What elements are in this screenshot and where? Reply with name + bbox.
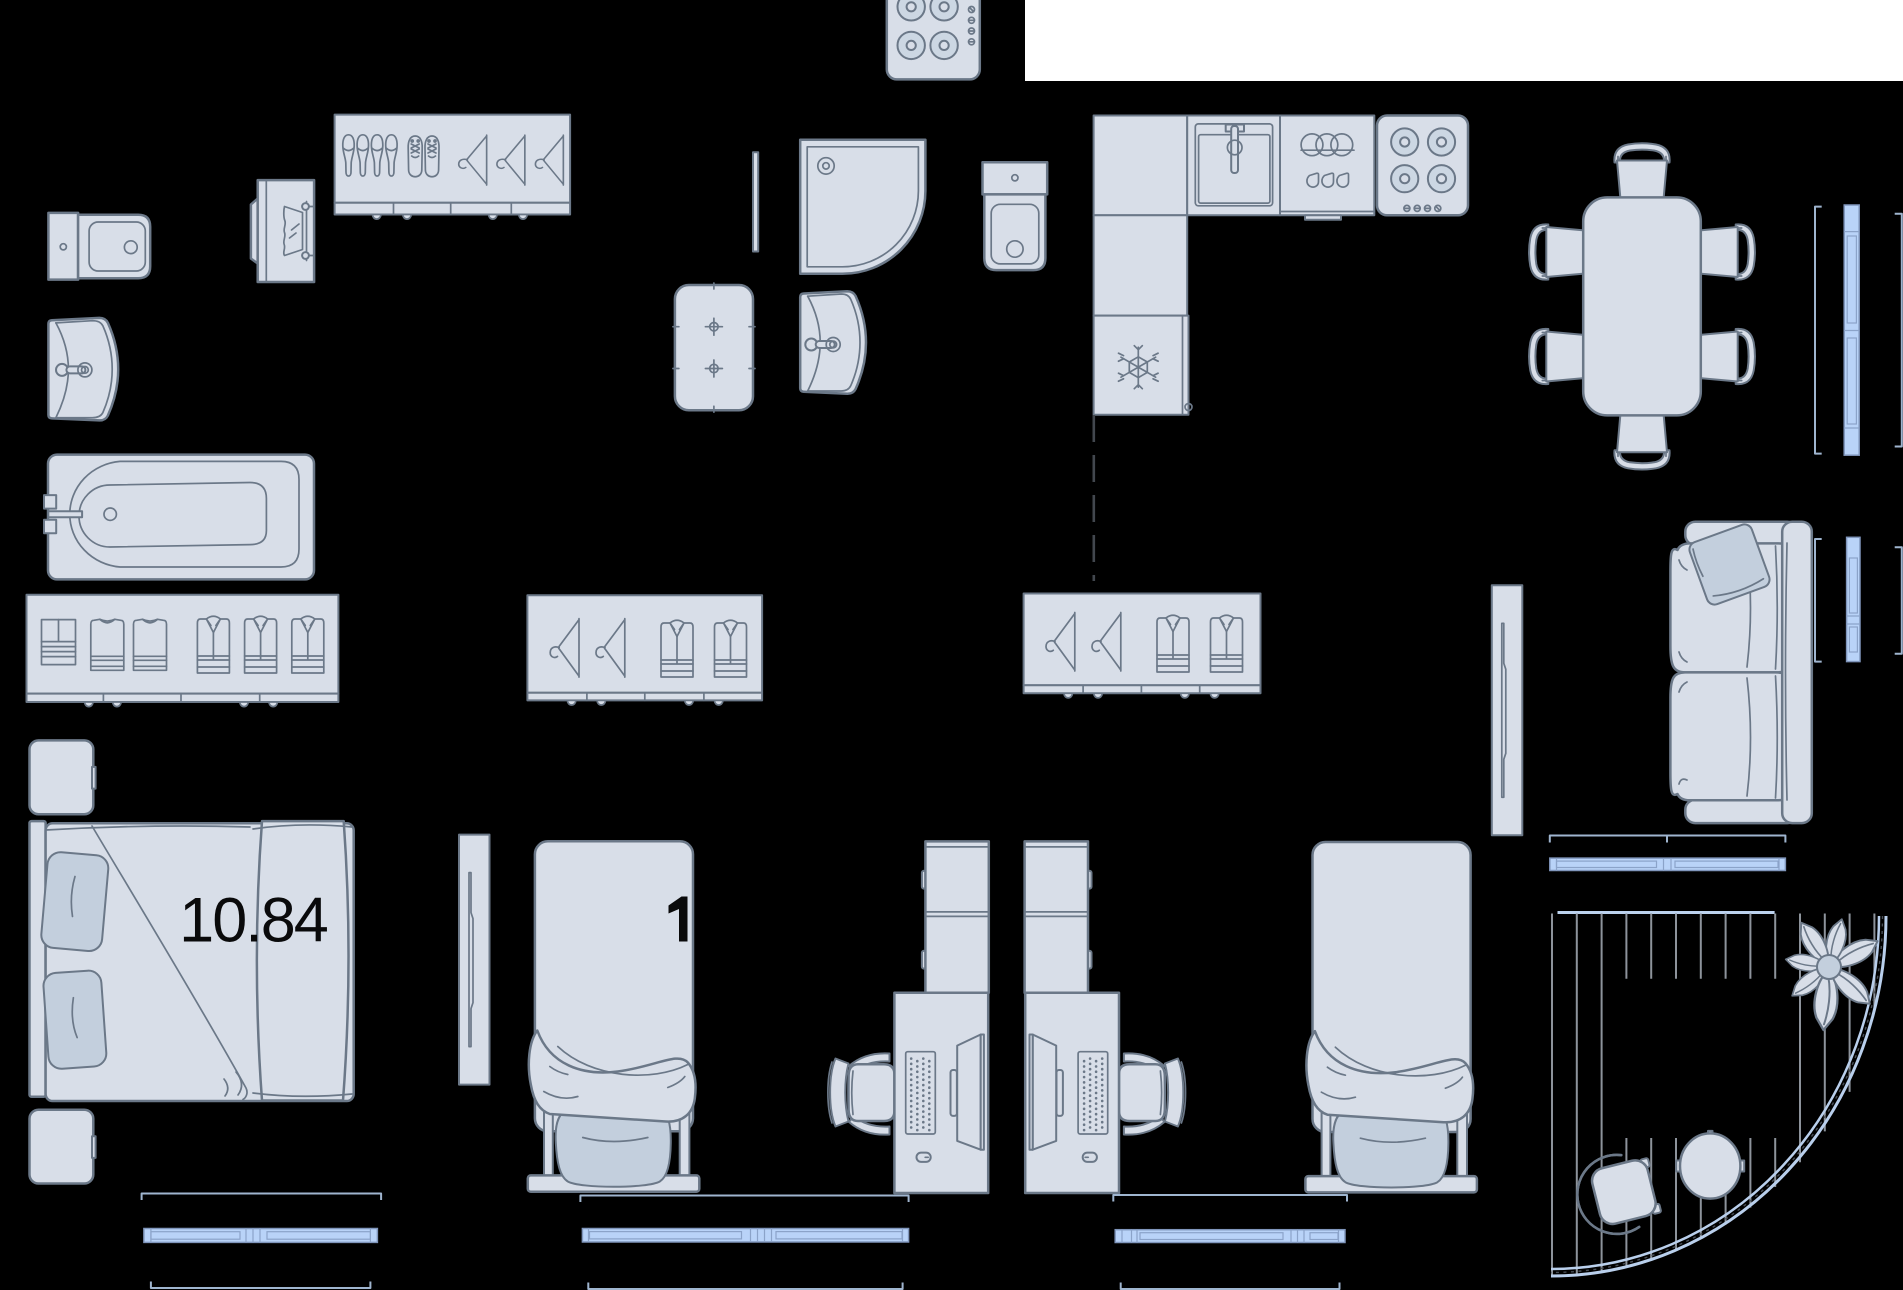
svg-text:10.84: 10.84 <box>179 886 328 956</box>
